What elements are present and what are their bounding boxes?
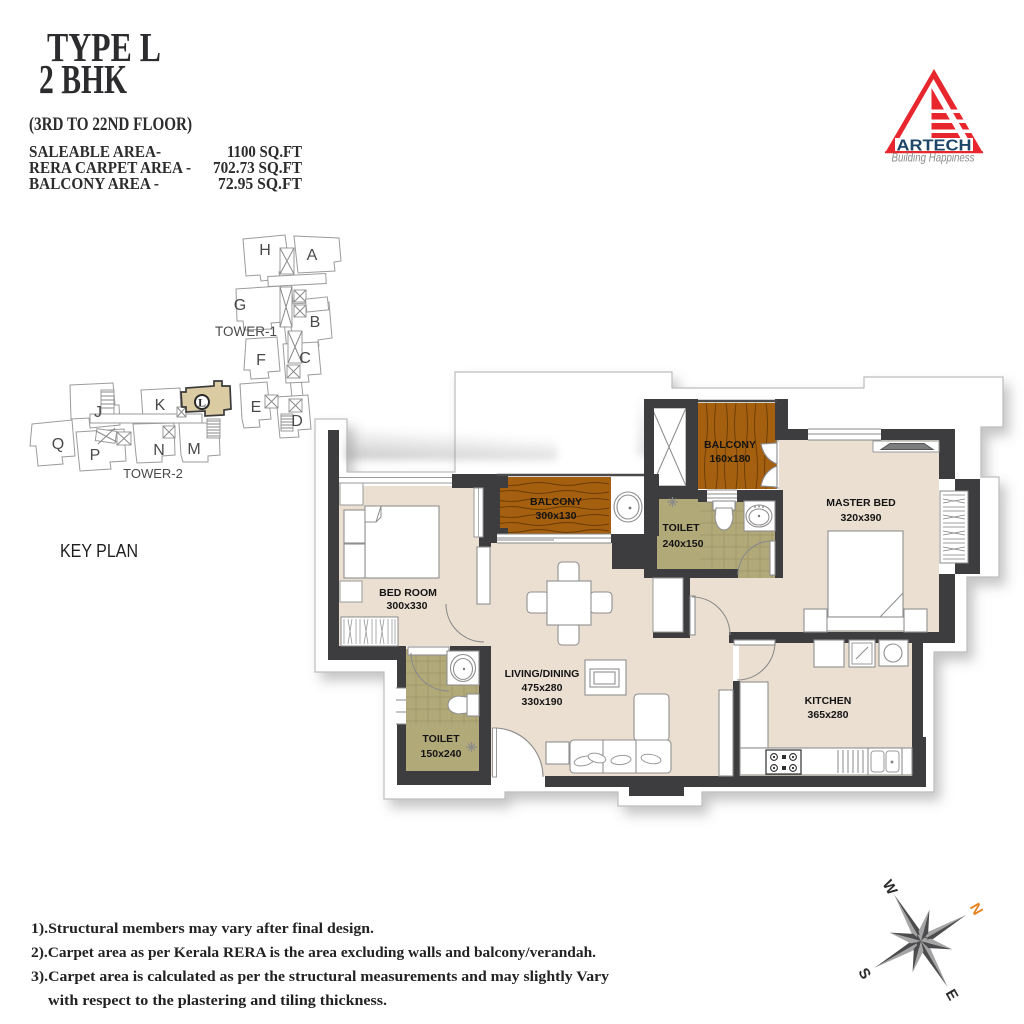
svg-text:N: N	[153, 442, 165, 459]
svg-text:L: L	[198, 396, 206, 410]
svg-text:300x130: 300x130	[536, 510, 577, 522]
svg-text:J: J	[94, 404, 102, 421]
svg-text:Q: Q	[52, 436, 64, 453]
svg-text:B: B	[310, 314, 321, 331]
svg-text:with respect to the plastering: with respect to the plastering and tilin…	[48, 993, 387, 1009]
svg-text:300x330: 300x330	[387, 600, 428, 612]
svg-text:TOWER-1: TOWER-1	[215, 324, 277, 339]
svg-text:LIVING/DINING: LIVING/DINING	[505, 668, 580, 680]
svg-text:BED ROOM: BED ROOM	[379, 587, 437, 599]
svg-text:M: M	[187, 441, 200, 458]
svg-text:3).Carpet area is calculated a: 3).Carpet area is calculated as per the …	[31, 969, 610, 985]
svg-text:TOILET: TOILET	[662, 522, 700, 534]
svg-text:72.95 SQ.FT: 72.95 SQ.FT	[218, 174, 302, 193]
svg-text:N: N	[966, 900, 986, 918]
svg-text:C: C	[299, 350, 311, 367]
svg-text:S: S	[854, 965, 874, 982]
svg-text:BALCONY AREA -: BALCONY AREA -	[29, 174, 159, 193]
svg-text:(3RD TO 22ND FLOOR): (3RD TO 22ND FLOOR)	[29, 114, 192, 135]
svg-text:F: F	[256, 352, 266, 369]
svg-text:240x150: 240x150	[663, 538, 704, 550]
svg-text:K: K	[155, 397, 166, 414]
svg-text:160x180: 160x180	[710, 453, 751, 465]
svg-text:E: E	[942, 986, 962, 1003]
svg-text:A: A	[307, 247, 318, 264]
svg-text:TOWER-2: TOWER-2	[123, 466, 183, 481]
svg-text:MASTER BED: MASTER BED	[826, 497, 896, 509]
svg-text:330x190: 330x190	[522, 696, 563, 708]
svg-text:P: P	[90, 447, 101, 464]
svg-text:BALCONY: BALCONY	[530, 496, 582, 508]
svg-text:150x240: 150x240	[421, 748, 462, 760]
svg-text:G: G	[234, 297, 246, 314]
svg-text:475x280: 475x280	[522, 682, 563, 694]
svg-text:W: W	[879, 877, 901, 898]
svg-text:TOILET: TOILET	[422, 733, 460, 745]
svg-text:D: D	[291, 413, 303, 430]
svg-text:320x390: 320x390	[841, 512, 882, 524]
svg-text:2 BHK: 2 BHK	[39, 56, 127, 102]
svg-text:H: H	[259, 242, 271, 259]
svg-text:Building Happiness: Building Happiness	[892, 153, 975, 165]
svg-text:1).Structural members may vary: 1).Structural members may vary after fin…	[31, 921, 374, 937]
svg-text:BALCONY: BALCONY	[704, 439, 756, 451]
svg-text:365x280: 365x280	[808, 709, 849, 721]
svg-text:KEY PLAN: KEY PLAN	[60, 541, 138, 561]
svg-text:2).Carpet area as per Kerala R: 2).Carpet area as per Kerala RERA is the…	[31, 945, 596, 961]
svg-text:KITCHEN: KITCHEN	[805, 695, 852, 707]
svg-text:E: E	[251, 399, 262, 416]
